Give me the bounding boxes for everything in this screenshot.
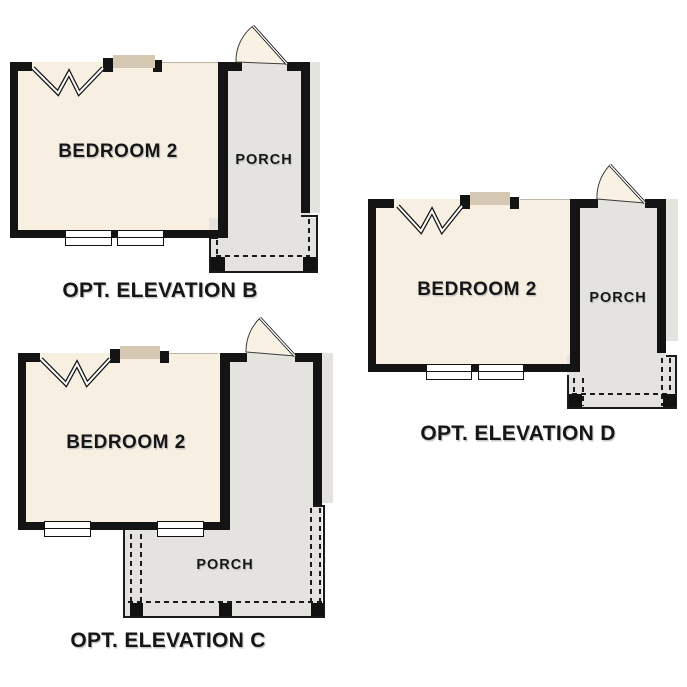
plan-d-symbols <box>398 165 645 231</box>
plan-d-room-label: BEDROOM 2 <box>397 279 557 301</box>
plan-c-room-label: BEDROOM 2 <box>46 432 206 454</box>
symbols-overlay <box>0 0 687 687</box>
plan-b-caption: OPT. ELEVATION B <box>20 279 300 303</box>
floorplan-canvas: BEDROOM 2PORCHOPT. ELEVATION BBEDROOM 2P… <box>0 0 687 687</box>
plan-b-wall-break-icon <box>33 68 103 93</box>
plan-d-porch-label: PORCH <box>583 290 653 306</box>
plan-c-symbols <box>41 318 295 384</box>
plan-c-caption: OPT. ELEVATION C <box>28 629 308 653</box>
plan-b-room-label: BEDROOM 2 <box>38 141 198 163</box>
plan-d-caption: OPT. ELEVATION D <box>378 422 658 446</box>
plan-c-door-swing-icon <box>246 318 295 356</box>
plan-b-symbols <box>33 26 287 93</box>
plan-c-porch-label: PORCH <box>190 557 260 573</box>
plan-b-porch-label: PORCH <box>229 152 299 168</box>
plan-b-door-swing-icon <box>236 26 287 64</box>
